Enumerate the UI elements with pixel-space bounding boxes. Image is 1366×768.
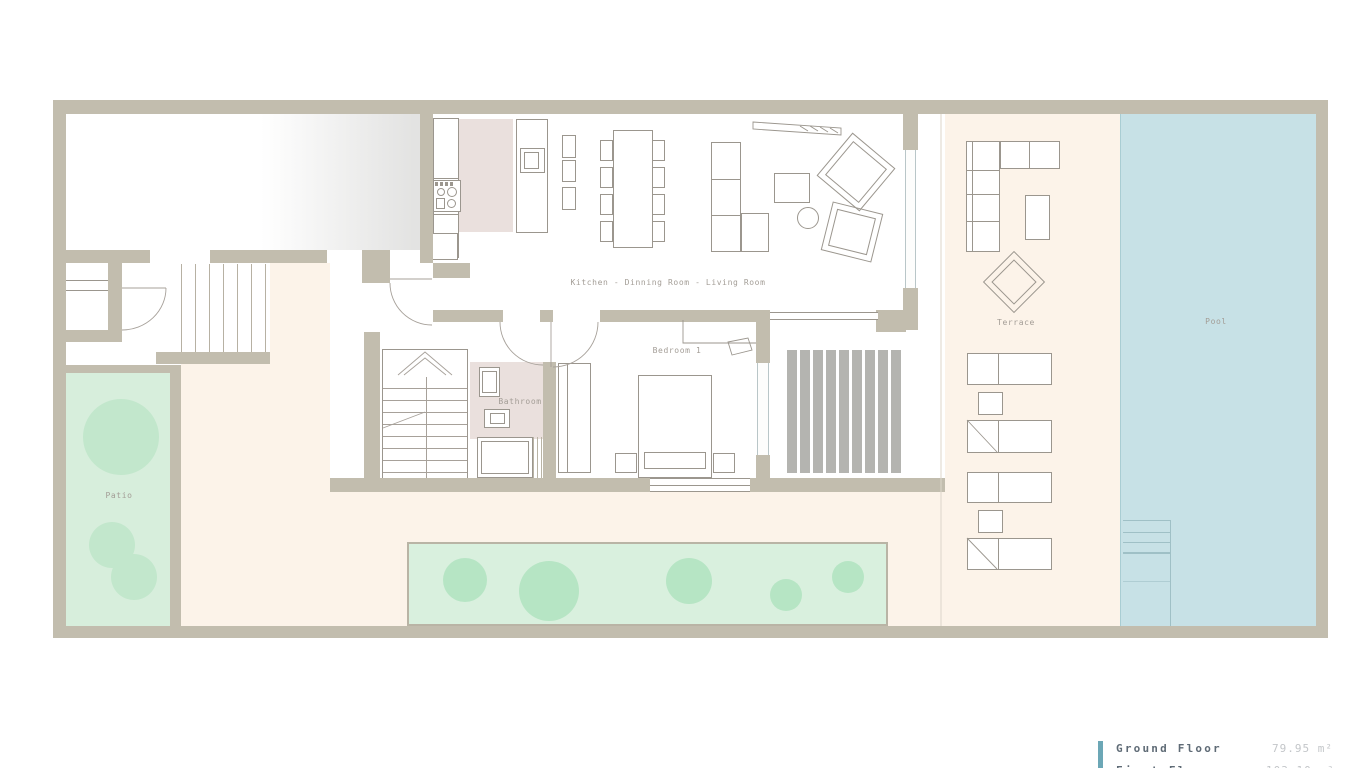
lounger-line bbox=[998, 473, 999, 502]
label-kitchen-dining-living: Kitchen - Dinning Room - Living Room bbox=[571, 278, 766, 287]
wall-corridor-top bbox=[433, 263, 470, 278]
swimming-pool bbox=[1120, 114, 1317, 626]
legend-row-value: 79.95 m² bbox=[1272, 742, 1333, 755]
garden-bush bbox=[770, 579, 802, 611]
wall-outer-top bbox=[53, 100, 1328, 114]
label-patio: Patio bbox=[105, 491, 132, 500]
legend-accent-bar bbox=[1098, 741, 1103, 768]
pool-step-line bbox=[1123, 581, 1170, 582]
living-window bbox=[905, 150, 916, 288]
wall-patio-top bbox=[53, 365, 181, 373]
armchair-seat bbox=[825, 141, 887, 203]
interior-stairs bbox=[382, 349, 468, 479]
lounger-line bbox=[998, 421, 999, 452]
patio-tree bbox=[83, 399, 159, 475]
sofa-chaise bbox=[741, 213, 769, 252]
wall-patio-right bbox=[170, 365, 181, 626]
exterior-stairs bbox=[168, 264, 269, 353]
stove bbox=[433, 180, 461, 212]
dining-chair bbox=[600, 194, 613, 215]
dining-chair bbox=[600, 140, 613, 161]
dining-chair bbox=[600, 221, 613, 242]
garden-bush bbox=[832, 561, 864, 593]
wall-stairs-bottom bbox=[156, 352, 270, 364]
shower-tray bbox=[481, 441, 529, 474]
patio-bush bbox=[111, 554, 157, 600]
legend-row-label: First Floor bbox=[1116, 764, 1213, 768]
terrace-side-table bbox=[1025, 195, 1050, 240]
sun-lounger-reclined bbox=[967, 538, 1052, 570]
garage-floor bbox=[66, 114, 420, 250]
kitchen-counter-line bbox=[433, 214, 459, 215]
pool-steps bbox=[1123, 520, 1171, 626]
cushion-line bbox=[1000, 142, 1001, 168]
burner bbox=[447, 187, 457, 197]
bed-pillow bbox=[644, 452, 706, 469]
shower bbox=[477, 437, 533, 478]
rear-window bbox=[650, 478, 750, 492]
stair-divider bbox=[426, 377, 427, 478]
dining-chair bbox=[652, 167, 665, 188]
tv-console bbox=[753, 122, 841, 135]
nightstand bbox=[615, 453, 637, 473]
side-table-round bbox=[797, 207, 819, 229]
sun-lounger bbox=[967, 472, 1052, 503]
kitchen-sink bbox=[520, 148, 545, 173]
lounger-table bbox=[978, 392, 1003, 415]
wall-bathroom-right bbox=[543, 362, 556, 483]
wall-bathroom-top bbox=[433, 310, 503, 322]
kitchen-counter-line bbox=[433, 178, 459, 179]
sink-counter bbox=[516, 119, 548, 233]
wall-cabinet bbox=[562, 187, 576, 210]
dining-chair bbox=[652, 194, 665, 215]
stove-controls bbox=[435, 182, 455, 186]
coffee-table bbox=[774, 173, 810, 203]
wall-garage-kitchen bbox=[420, 114, 433, 263]
wall-outer-bottom bbox=[53, 626, 1328, 638]
wall-cabinet bbox=[562, 135, 576, 158]
sink-basin bbox=[482, 371, 497, 393]
dining-chair bbox=[652, 221, 665, 242]
legend-row-label: Ground Floor bbox=[1116, 742, 1222, 755]
wall-entry-divider bbox=[108, 263, 122, 330]
garden-strip bbox=[407, 542, 888, 626]
label-bedroom: Bedroom 1 bbox=[653, 346, 702, 355]
wardrobe-divider bbox=[567, 364, 568, 472]
wall-entry-jamb bbox=[362, 250, 390, 283]
sink-basin bbox=[524, 152, 539, 169]
burner bbox=[447, 199, 456, 208]
armchair bbox=[817, 133, 896, 212]
wall-garage-bottom bbox=[53, 250, 150, 263]
toilet bbox=[484, 409, 510, 428]
side-path-floor-2 bbox=[181, 364, 270, 490]
sofa-cushion-line bbox=[712, 215, 740, 216]
armchair bbox=[821, 201, 884, 262]
dining-chair bbox=[652, 140, 665, 161]
sun-lounger-reclined bbox=[967, 420, 1052, 453]
wall-bedroom-top bbox=[600, 310, 756, 322]
wall-stairs-left bbox=[364, 332, 380, 483]
dining-chair bbox=[600, 167, 613, 188]
wall-house-bottom bbox=[750, 478, 945, 492]
wall-bedroom-right bbox=[756, 310, 770, 363]
wall-garage-bottom bbox=[210, 250, 327, 263]
kitchen-cabinet bbox=[430, 233, 458, 260]
armrest-line bbox=[972, 142, 973, 251]
stair-treads bbox=[383, 377, 467, 478]
lounger-table bbox=[978, 510, 1003, 533]
toilet-bowl bbox=[490, 413, 505, 424]
burner bbox=[437, 188, 445, 196]
pool-step-line bbox=[1123, 552, 1170, 554]
wall-sliding-corner bbox=[876, 310, 906, 332]
sofa-cushion-line bbox=[712, 179, 740, 180]
wall-bedroom-jamb bbox=[540, 310, 553, 322]
terrace-sofa-vertical bbox=[966, 141, 1000, 252]
sliding-glass-door bbox=[770, 312, 878, 320]
wall-living-right bbox=[903, 114, 918, 150]
armchair-seat bbox=[828, 209, 876, 256]
garden-bush bbox=[519, 561, 579, 621]
label-bathroom: Bathroom bbox=[498, 397, 541, 406]
wall-entry-bottom bbox=[53, 330, 122, 342]
bedroom-window bbox=[757, 363, 769, 455]
kitchen-floor-area bbox=[459, 119, 513, 232]
wall-outer-right bbox=[1316, 100, 1328, 638]
label-pool: Pool bbox=[1205, 317, 1227, 326]
side-path-floor bbox=[270, 263, 330, 490]
wall-cabinet bbox=[562, 160, 576, 182]
sofa bbox=[711, 142, 741, 252]
dining-table bbox=[613, 130, 653, 248]
area-legend: Ground Floor 79.95 m² First Floor 103.10… bbox=[1094, 740, 1356, 768]
wall-house-bottom bbox=[330, 478, 650, 492]
deck-pergola bbox=[787, 350, 903, 473]
garden-bush bbox=[443, 558, 487, 602]
pool-step-line bbox=[1123, 532, 1170, 533]
entry-closet bbox=[66, 280, 108, 291]
garden-bush bbox=[666, 558, 712, 604]
floor-plan-canvas: Kitchen - Dinning Room - Living Room Bed… bbox=[0, 0, 1366, 768]
pool-step-line bbox=[1123, 542, 1170, 543]
bathroom-sink bbox=[479, 367, 500, 397]
nightstand bbox=[713, 453, 735, 473]
burner bbox=[436, 198, 445, 209]
wardrobe bbox=[558, 363, 591, 473]
cushion-line bbox=[1029, 142, 1030, 168]
label-terrace: Terrace bbox=[997, 318, 1035, 327]
legend-row-value: 103.10 m² bbox=[1266, 764, 1335, 768]
sun-lounger bbox=[967, 353, 1052, 385]
lounger-line bbox=[998, 354, 999, 384]
lounger-line bbox=[998, 539, 999, 569]
